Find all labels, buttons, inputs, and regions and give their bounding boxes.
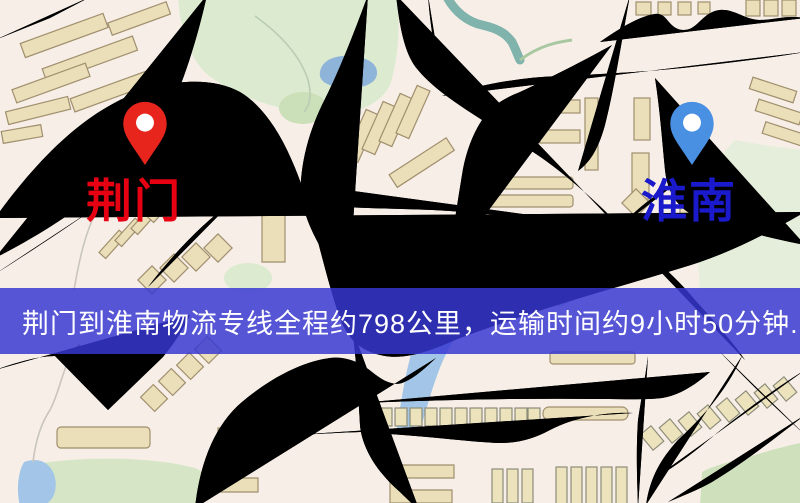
route-info-text: 荆门到淮南物流专线全程约798公里，运输时间约9小时50分钟.	[0, 302, 799, 341]
destination-pin-icon[interactable]	[669, 100, 715, 166]
destination-city-label: 淮南	[641, 178, 737, 224]
origin-city-label: 荆门	[86, 178, 182, 224]
origin-pin-icon[interactable]	[122, 100, 168, 166]
map-screenshot: 荆门到淮南物流专线全程约798公里，运输时间约9小时50分钟. 荆门 淮南	[0, 0, 800, 503]
map-canvas[interactable]	[0, 0, 800, 503]
route-info-banner: 荆门到淮南物流专线全程约798公里，运输时间约9小时50分钟.	[0, 288, 800, 354]
